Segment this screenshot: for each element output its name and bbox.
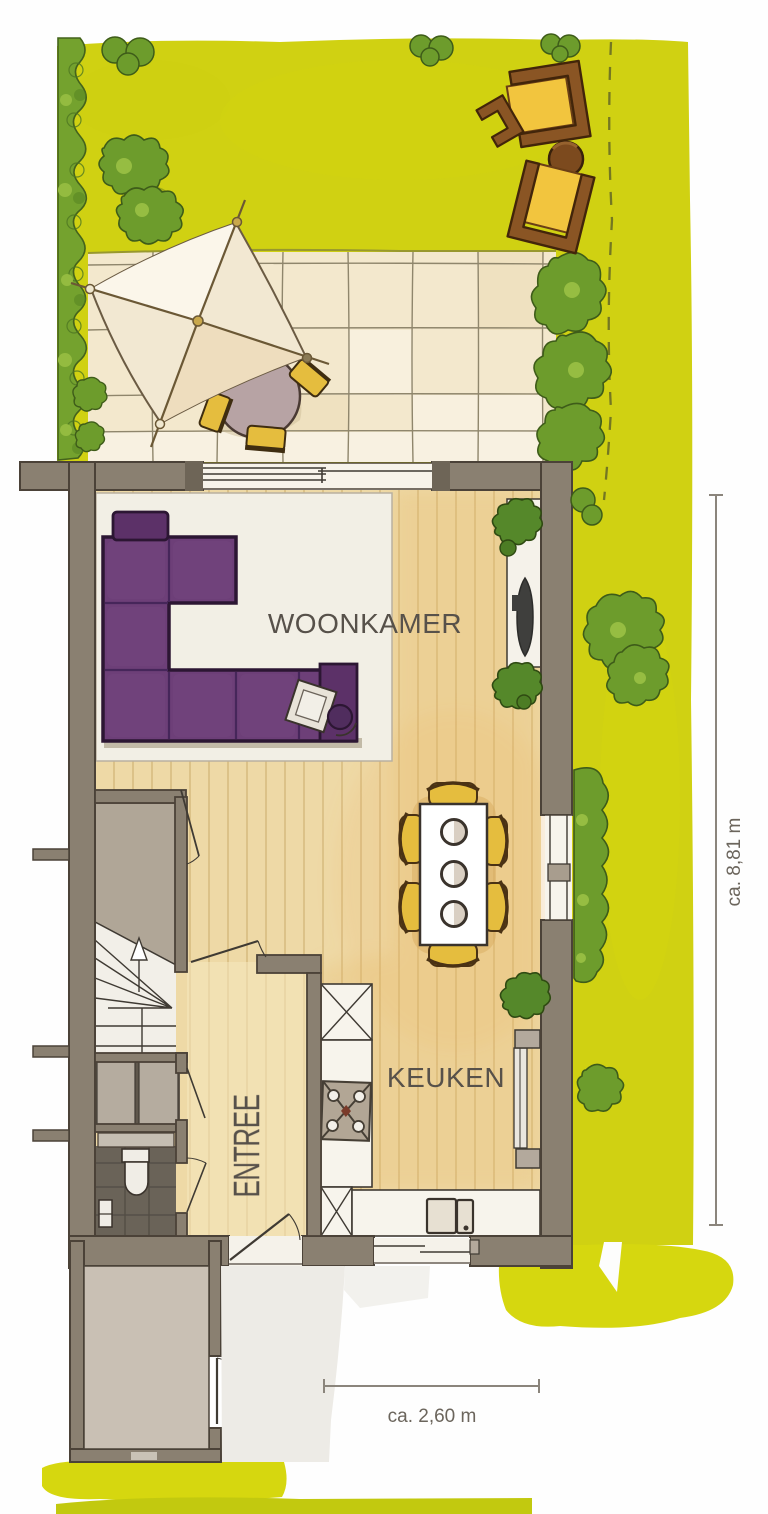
svg-text:ca. 2,60 m: ca. 2,60 m: [388, 1406, 477, 1427]
svg-text:KEUKEN: KEUKEN: [387, 1062, 505, 1093]
svg-text:ca. 8,81 m: ca. 8,81 m: [724, 818, 745, 907]
svg-text:ENTREE: ENTREE: [225, 1094, 267, 1197]
svg-text:WOONKAMER: WOONKAMER: [268, 608, 462, 639]
